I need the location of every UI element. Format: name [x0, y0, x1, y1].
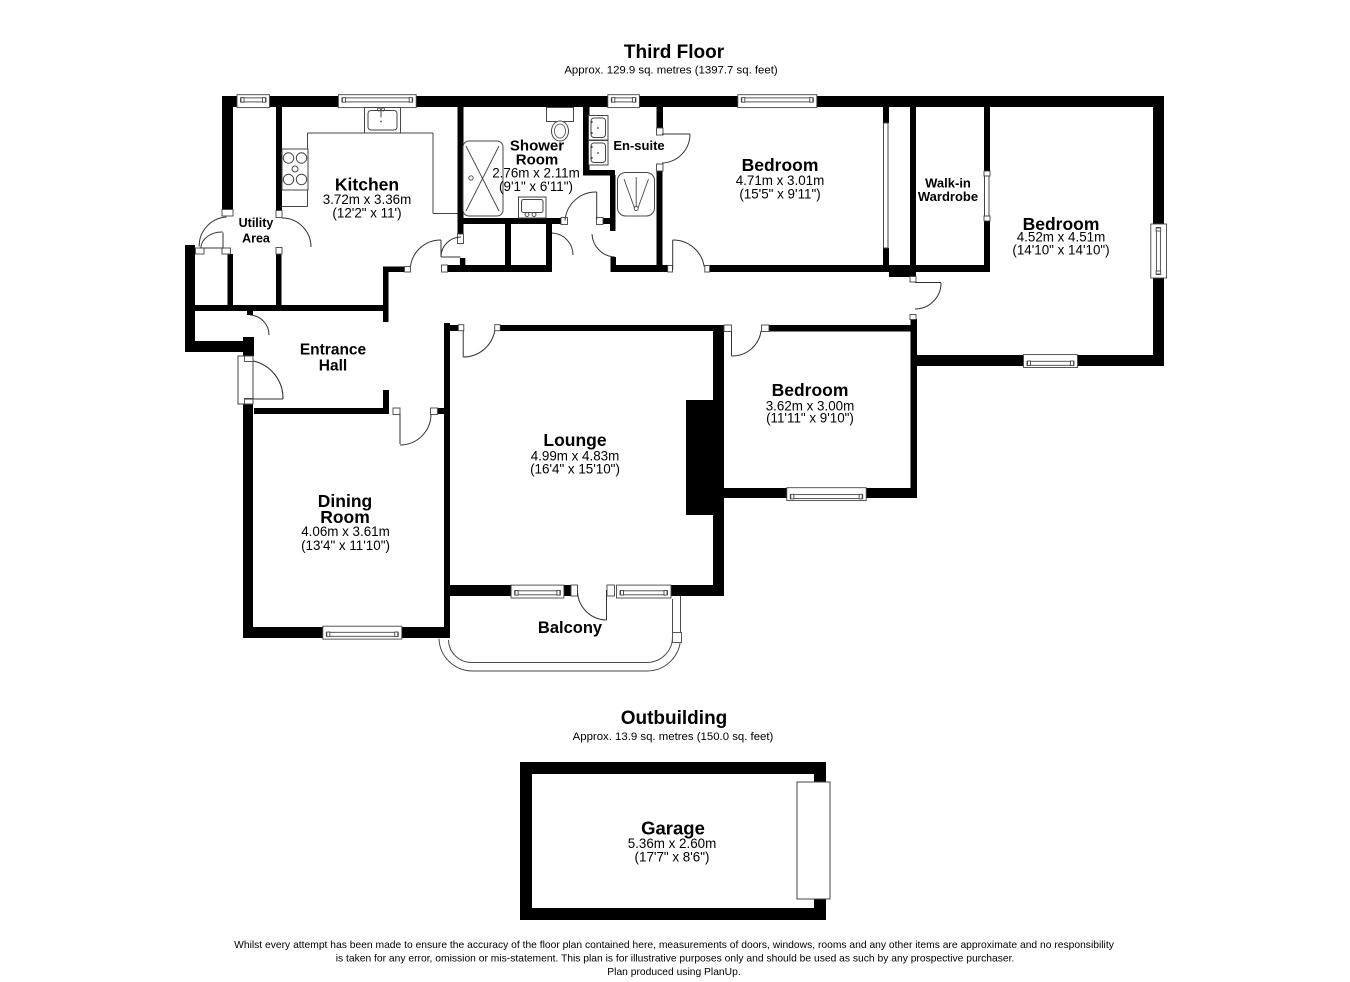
svg-text:(17'7" x 8'6"): (17'7" x 8'6"): [635, 850, 710, 865]
svg-text:(15'5" x 9'11"): (15'5" x 9'11"): [739, 187, 820, 202]
svg-text:(11'11" x 9'10"): (11'11" x 9'10"): [766, 411, 854, 426]
svg-text:(9'1" x 6'11"): (9'1" x 6'11"): [499, 179, 573, 194]
svg-text:Utility: Utility: [239, 216, 274, 230]
svg-text:Hall: Hall: [319, 357, 347, 374]
svg-text:Approx. 129.9 sq. metres (1397: Approx. 129.9 sq. metres (1397.7 sq. fee…: [564, 65, 778, 77]
svg-text:(16'4" x 15'10"): (16'4" x 15'10"): [530, 462, 620, 477]
svg-text:Plan produced using PlanUp.: Plan produced using PlanUp.: [607, 967, 740, 978]
svg-text:Lounge: Lounge: [543, 430, 606, 450]
svg-text:(12'2" x 11'): (12'2" x 11'): [332, 206, 401, 221]
svg-text:Area: Area: [242, 231, 271, 245]
svg-text:(14'10" x 14'10"): (14'10" x 14'10"): [1012, 243, 1109, 258]
svg-text:Approx. 13.9 sq. metres (150.0: Approx. 13.9 sq. metres (150.0 sq. feet): [573, 731, 774, 743]
svg-text:Wardrobe: Wardrobe: [918, 189, 978, 204]
svg-text:Whilst every attempt has been: Whilst every attempt has been made to en…: [234, 940, 1115, 951]
svg-text:Third Floor: Third Floor: [624, 42, 725, 63]
svg-text:Outbuilding: Outbuilding: [621, 708, 728, 729]
svg-text:is taken for any error, omissi: is taken for any error, omission or mis-…: [336, 954, 1015, 965]
svg-text:Entrance: Entrance: [300, 341, 367, 358]
svg-text:Bedroom: Bedroom: [772, 380, 849, 400]
svg-text:En-suite: En-suite: [613, 138, 664, 153]
svg-text:Balcony: Balcony: [538, 619, 603, 637]
svg-text:(13'4" x 11'10"): (13'4" x 11'10"): [301, 538, 390, 553]
svg-text:4.06m x 3.61m: 4.06m x 3.61m: [301, 524, 390, 539]
svg-text:Bedroom: Bedroom: [742, 155, 819, 175]
